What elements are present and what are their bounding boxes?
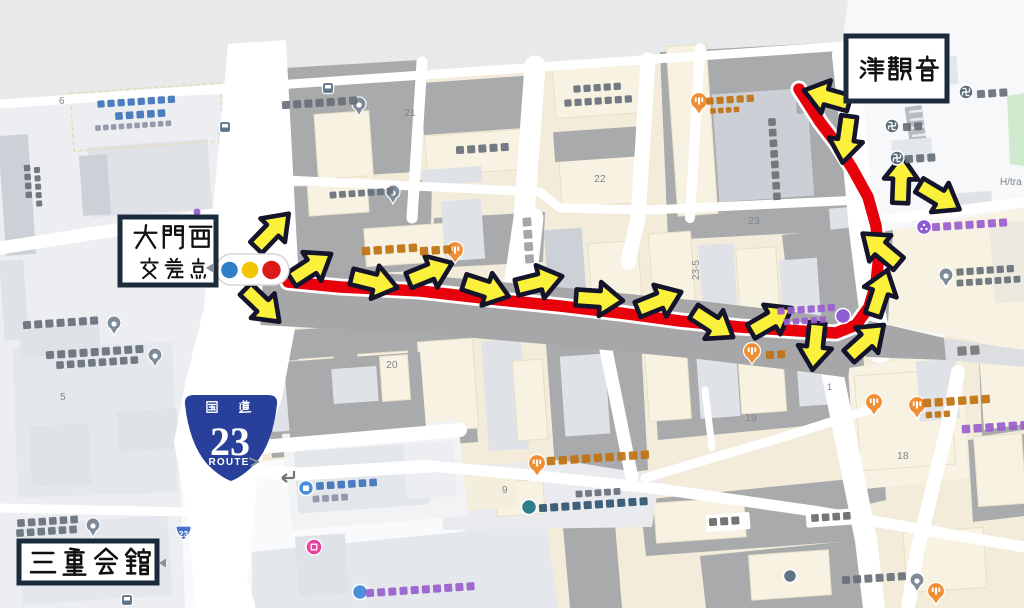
svg-text:23-5: 23-5 bbox=[691, 260, 702, 280]
svg-text:18: 18 bbox=[897, 450, 909, 462]
svg-text:23: 23 bbox=[179, 529, 189, 539]
svg-text:5: 5 bbox=[60, 392, 66, 403]
svg-text:H/tra: H/tra bbox=[1000, 177, 1022, 188]
svg-text:6: 6 bbox=[59, 96, 65, 107]
svg-text:21: 21 bbox=[404, 107, 416, 119]
svg-text:1: 1 bbox=[827, 382, 832, 392]
svg-text:ROUTE: ROUTE bbox=[209, 457, 250, 468]
svg-text:9: 9 bbox=[502, 485, 508, 496]
svg-text:20: 20 bbox=[386, 359, 398, 371]
svg-text:23: 23 bbox=[748, 215, 760, 227]
svg-text:22: 22 bbox=[594, 173, 606, 185]
svg-text:19: 19 bbox=[745, 412, 757, 424]
